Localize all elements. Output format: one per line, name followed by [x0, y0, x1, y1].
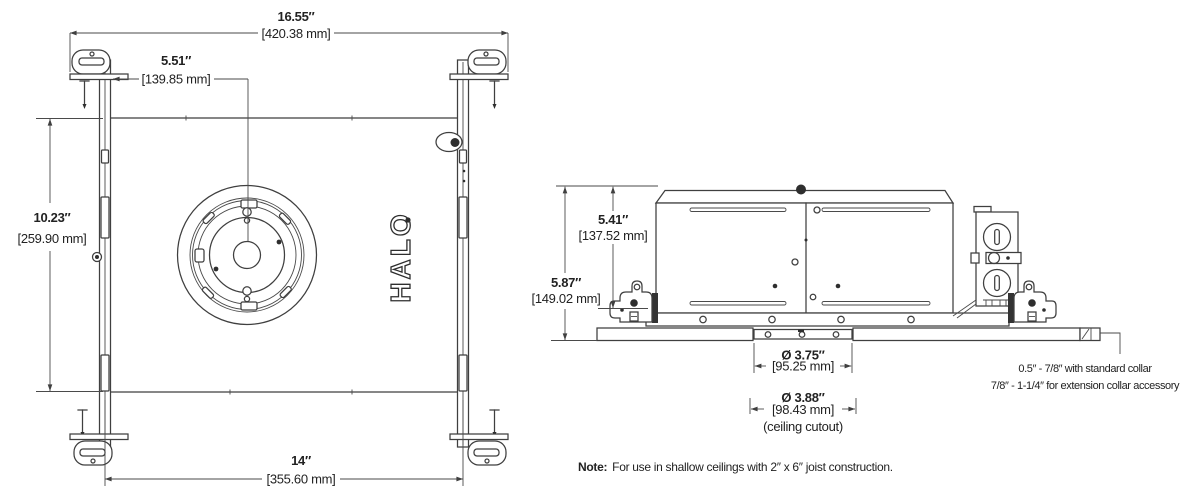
hanger-bar-right	[458, 60, 469, 447]
latch-detail	[436, 133, 462, 152]
ceiling-edge-cap	[1080, 328, 1100, 341]
line-drawing: HALO 16.55″ [420.38 mm] 5.51″ [139.85 mm…	[0, 0, 1200, 493]
spec-sheet: HALO 16.55″ [420.38 mm] 5.51″ [139.85 mm…	[0, 0, 1200, 493]
registered-mark-dot	[405, 217, 410, 222]
lid-knob	[796, 185, 806, 195]
housing-body	[656, 185, 953, 314]
dim-housing-height-mm: [137.52 mm]	[579, 228, 648, 243]
dim-plate-height: 10.23″ [259.90 mm]	[18, 119, 103, 392]
dim-overall-width-in: 16.55″	[278, 9, 315, 24]
dim-aperture-mm: [95.25 mm]	[772, 359, 834, 374]
dim-base-width-in: 14″	[291, 453, 311, 468]
dim-base-width-mm: [355.60 mm]	[267, 472, 336, 487]
dim-center-offset-in: 5.51″	[161, 53, 191, 68]
collar-standard-text: 0.5″ - 7/8″ with standard collar	[1018, 363, 1152, 375]
ceiling-left	[597, 328, 753, 341]
dim-cutout: Ø 3.88″ [98.43 mm] (ceiling cutout)	[750, 390, 856, 434]
brand-logo-text: HALO	[385, 211, 416, 302]
dim-cutout-caption: (ceiling cutout)	[763, 419, 843, 434]
dim-overall-width: 16.55″ [420.38 mm]	[70, 9, 508, 72]
footnote: Note:For use in shallow ceilings with 2″…	[578, 460, 893, 474]
ceiling-section	[597, 328, 1120, 354]
footnote-text: For use in shallow ceilings with 2″ x 6″…	[612, 460, 893, 474]
cable-clamp	[971, 253, 1021, 264]
footnote-label: Note:	[578, 460, 607, 474]
collar-annotation: 0.5″ - 7/8″ with standard collar 7/8″ - …	[991, 363, 1180, 392]
dim-center-offset-mm: [139.85 mm]	[142, 72, 211, 87]
dim-overall-height-mm: [149.02 mm]	[532, 291, 601, 306]
dim-plate-height-in: 10.23″	[34, 210, 71, 225]
plan-view: HALO 16.55″ [420.38 mm] 5.51″ [139.85 mm…	[18, 9, 508, 487]
dim-overall-height-in: 5.87″	[551, 275, 581, 290]
hanger-bracket-left	[610, 281, 658, 323]
ceiling-right	[853, 328, 1080, 341]
dim-housing-height-in: 5.41″	[598, 212, 628, 227]
dim-base-width: 14″ [355.60 mm]	[105, 400, 463, 487]
halo-logo: HALO	[385, 211, 416, 302]
dim-plate-height-mm: [259.90 mm]	[18, 231, 87, 246]
dim-overall-width-mm: [420.38 mm]	[262, 26, 331, 41]
dim-cutout-mm: [98.43 mm]	[772, 402, 834, 417]
center-hole	[234, 242, 261, 269]
collar-extension-text: 7/8″ - 1-1/4″ for extension collar acces…	[991, 380, 1180, 392]
collar-plate	[754, 330, 852, 340]
dim-overall-height: 5.87″ [149.02 mm]	[532, 187, 601, 341]
side-view: 5.41″ [137.52 mm] 5.87″ [149.02 mm] Ø 3.…	[532, 185, 1181, 435]
collar-leader-line	[1100, 333, 1120, 354]
dim-aperture: Ø 3.75″ [95.25 mm]	[754, 343, 852, 374]
